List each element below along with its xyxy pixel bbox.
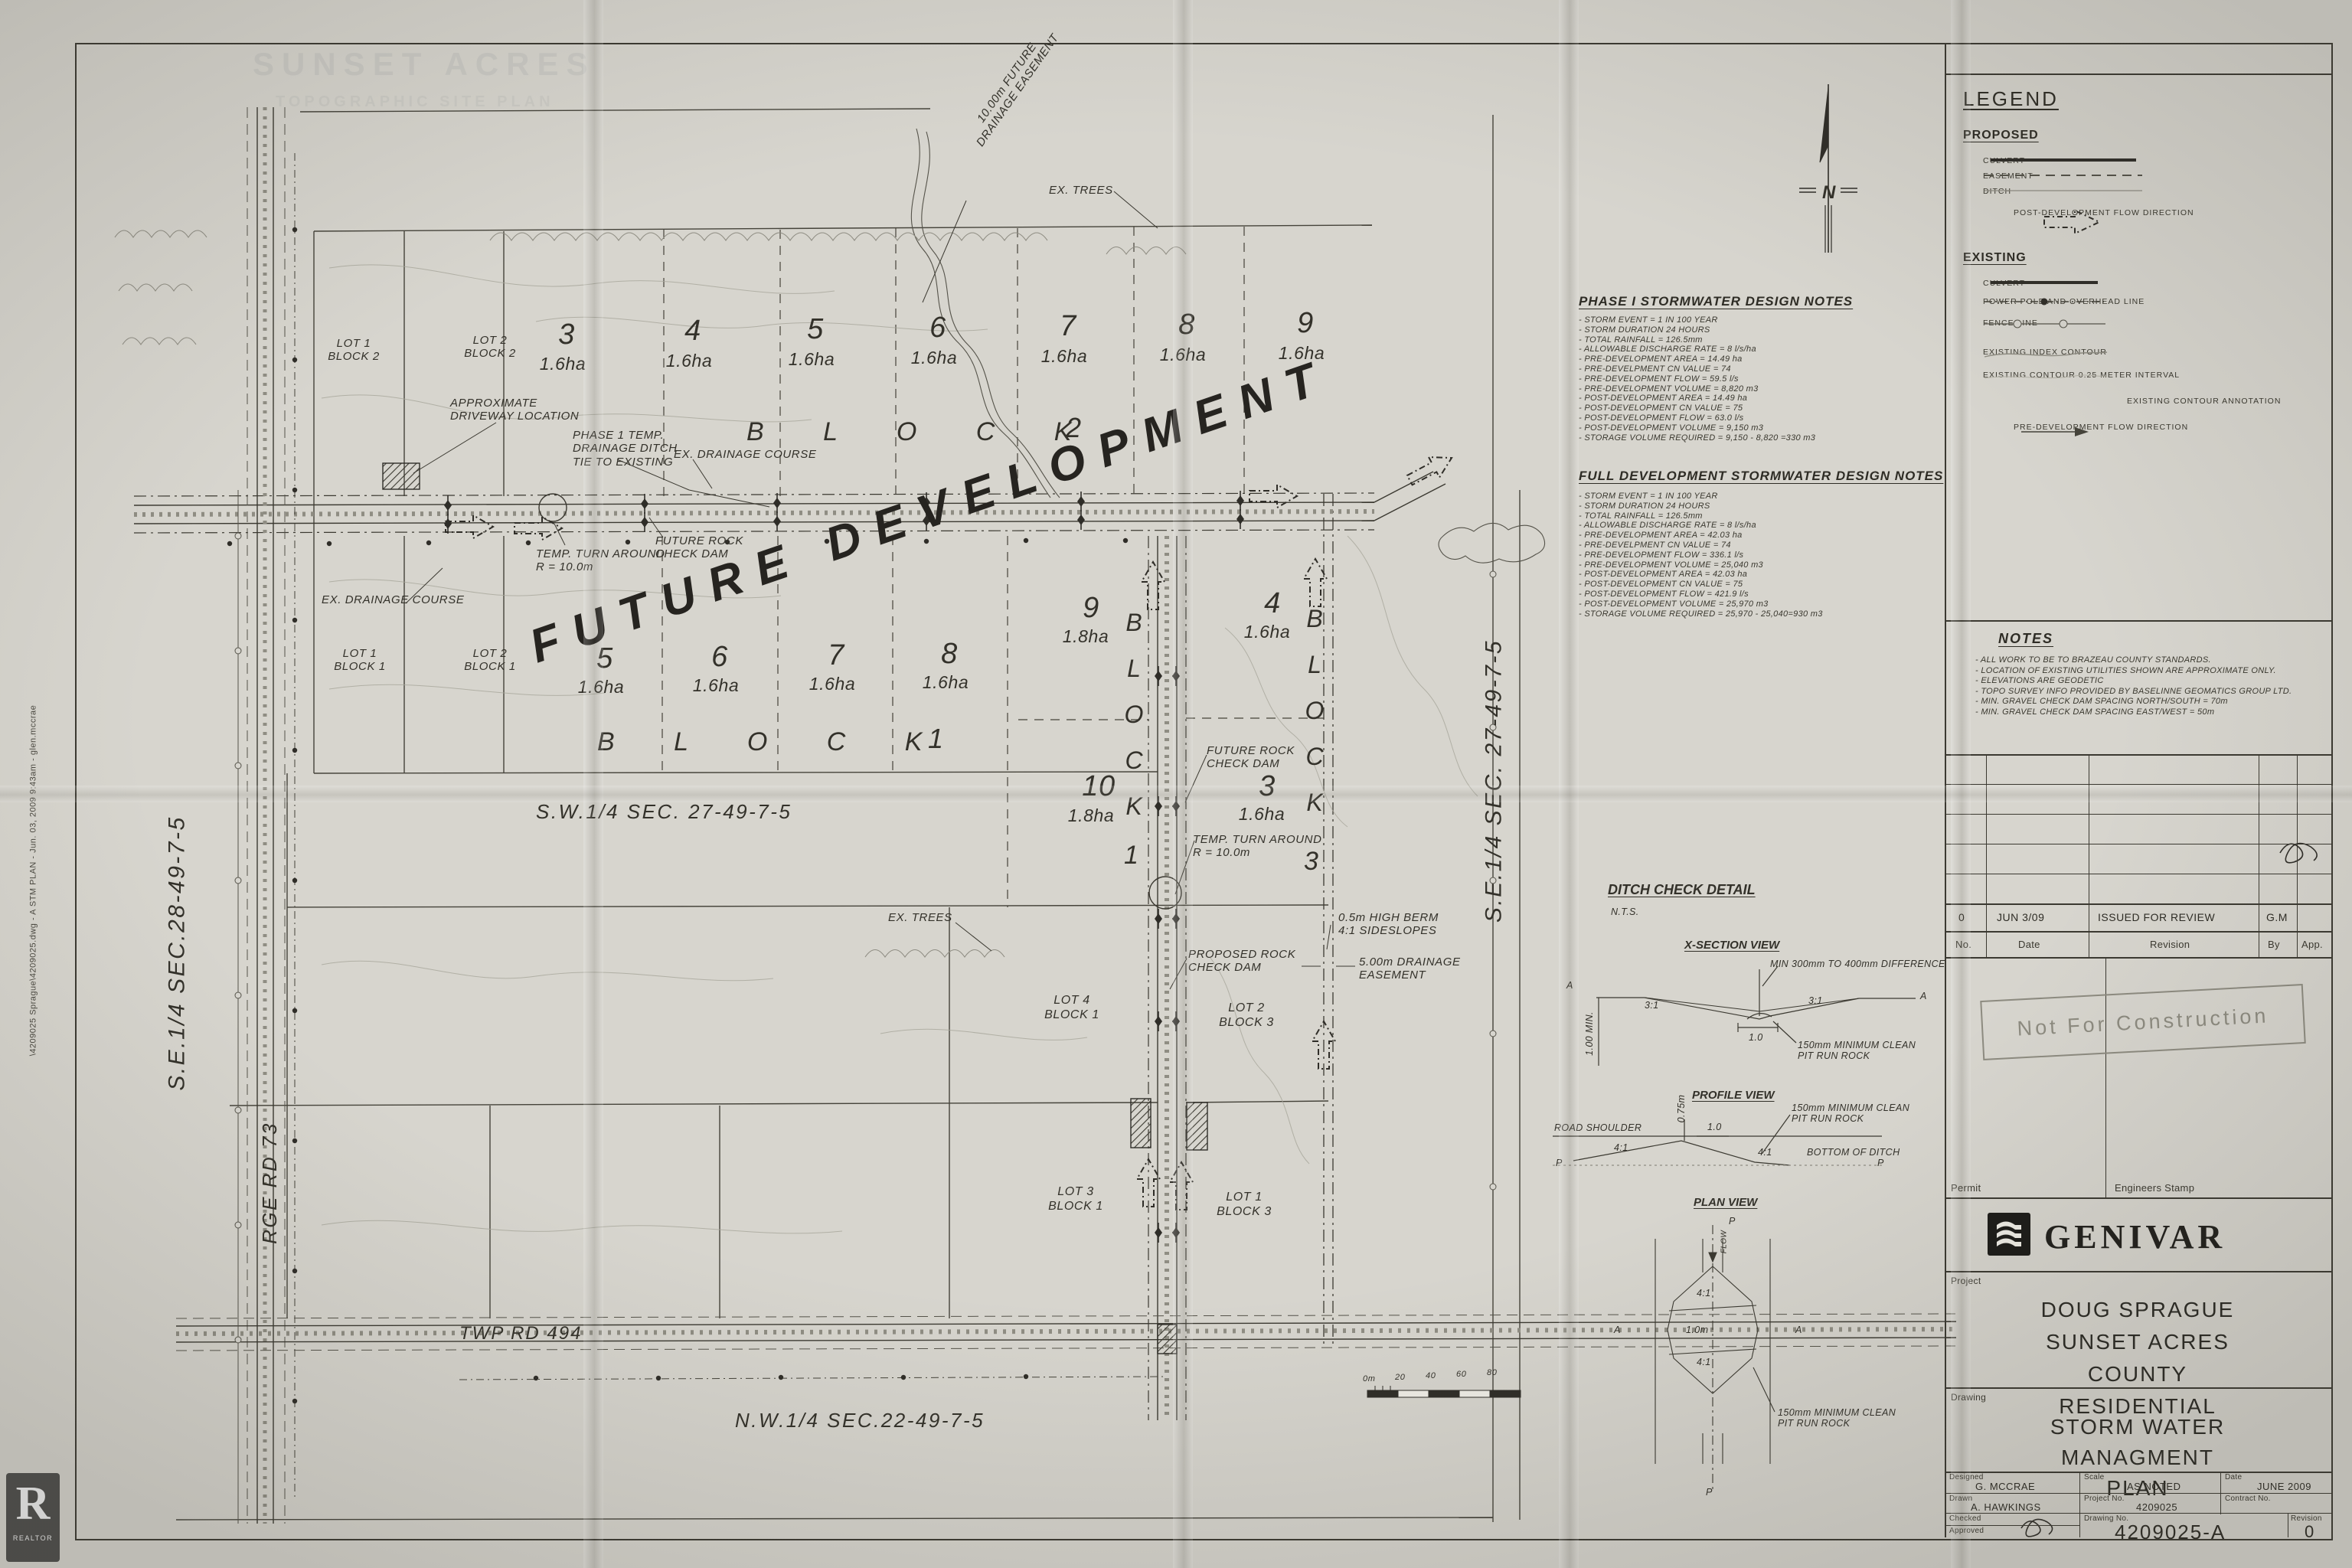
row-line	[1945, 814, 2331, 815]
legend-row: EASEMENT	[1983, 171, 2033, 181]
legend-row: DITCH	[1983, 187, 2011, 196]
legend-row: POWER POLE AND OVERHEAD LINE	[1983, 297, 2145, 306]
fold-crease	[0, 786, 2352, 802]
index-contour-icon	[1983, 348, 2113, 360]
proposed-culvert-icon	[1983, 156, 2144, 164]
legend-row: FENCE LINE	[1983, 318, 2038, 328]
header-app: App.	[2301, 939, 2323, 950]
project-no-label: Project No.	[2084, 1494, 2125, 1503]
drawn-value: A. HAWKINGS	[1971, 1501, 2041, 1513]
row-line	[1945, 957, 2331, 959]
engineers-stamp-label: Engineers Stamp	[2115, 1182, 2194, 1194]
legend-existing-title: EXISTING	[1963, 251, 2027, 265]
not-for-construction-stamp: Not For Construction	[1980, 984, 2306, 1060]
project-no-value: 4209025	[2136, 1501, 2177, 1513]
row-line	[1945, 844, 2331, 844]
project-name: DOUG SPRAGUE SUNSET ACRES COUNTY RESIDEN…	[2041, 1294, 2235, 1423]
genivar-logo-icon	[1988, 1213, 2030, 1256]
divider	[1945, 1197, 2331, 1199]
legend-row: EXISTING INDEX CONTOUR	[1983, 348, 2107, 357]
scale-value: AS NOTED	[2127, 1481, 2180, 1492]
realtor-watermark: R REALTOR	[6, 1473, 60, 1562]
divider	[1945, 1271, 2331, 1272]
row-line	[1945, 874, 2331, 874]
scanned-stormwater-plan-sheet: { "ann": { "future_dev": "FUTURE DEVELOP…	[0, 0, 2352, 1568]
notes-title: NOTES	[1998, 631, 2053, 647]
row-line	[1945, 784, 2331, 785]
plot-file-info: \4209025 Sprague\4209025.dwg - A STM PLA…	[29, 705, 39, 1056]
designed-value: G. MCCRAE	[1975, 1481, 2035, 1492]
fold-crease	[583, 0, 603, 1568]
notes-body: - ALL WORK TO BE TO BRAZEAU COUNTY STAND…	[1975, 655, 2292, 718]
row-line	[1945, 1513, 2331, 1514]
legend-row: POST-DEVELOPMENT FLOW DIRECTION	[2014, 208, 2194, 217]
post-development-flow-icon	[2014, 208, 2144, 236]
date-label: Date	[2225, 1473, 2242, 1481]
divider	[1945, 73, 2331, 75]
fold-crease	[1559, 0, 1579, 1568]
fold-crease	[1173, 0, 1193, 1568]
divider	[1945, 1387, 2331, 1389]
realtor-text: REALTOR	[13, 1534, 53, 1542]
row-line	[1945, 903, 2331, 905]
col-line	[2288, 1513, 2288, 1537]
row-line	[1945, 931, 2331, 933]
interval-contour-icon	[1983, 371, 2113, 383]
revision-by: G.M	[2266, 911, 2288, 923]
company-name: GENIVAR	[2044, 1217, 2226, 1256]
row-line	[1945, 1493, 2331, 1494]
legend-row: PRE-DEVELOPMENT FLOW DIRECTION	[2014, 423, 2188, 432]
revision-date: JUN 3/09	[1997, 911, 2044, 923]
scale-label: Scale	[2084, 1473, 2105, 1481]
legend-proposed-title: PROPOSED	[1963, 129, 2039, 142]
legend-title: LEGEND	[1963, 87, 2059, 111]
date-value: JUNE 2009	[2257, 1481, 2311, 1492]
legend-row: CULVERT	[1983, 279, 2025, 288]
revision-desc: ISSUED FOR REVIEW	[2098, 911, 2215, 923]
divider	[1945, 620, 2331, 622]
existing-culvert-icon	[1983, 279, 2113, 286]
header-revision: Revision	[2150, 939, 2190, 950]
divider	[1945, 1472, 2331, 1473]
power-pole-overhead-line-icon	[1983, 297, 2113, 306]
legend-row: EXISTING CONTOUR 0.25 METER INTERVAL	[1983, 371, 2180, 380]
revision-value: 0	[2305, 1522, 2314, 1542]
col-line	[2079, 1472, 2080, 1537]
legend-row: EXISTING CONTOUR ANNOTATION	[2127, 397, 2281, 406]
proposed-easement-icon	[1983, 171, 2144, 179]
legend-row: CULVERT	[1983, 156, 2025, 165]
fold-crease	[1951, 0, 1971, 1568]
realtor-r: R	[16, 1473, 51, 1534]
proposed-ditch-icon	[1983, 187, 2144, 194]
drawing-no-value: 4209025-A	[2115, 1521, 2226, 1544]
pre-development-flow-icon	[2014, 423, 2125, 441]
header-by: By	[2268, 939, 2280, 950]
contract-no-label: Contract No.	[2225, 1494, 2271, 1503]
divider	[1945, 754, 2331, 756]
header-date: Date	[2018, 939, 2040, 950]
fence-line-icon	[1983, 318, 2113, 329]
legend-label: EXISTING CONTOUR ANNOTATION	[2127, 397, 2281, 406]
